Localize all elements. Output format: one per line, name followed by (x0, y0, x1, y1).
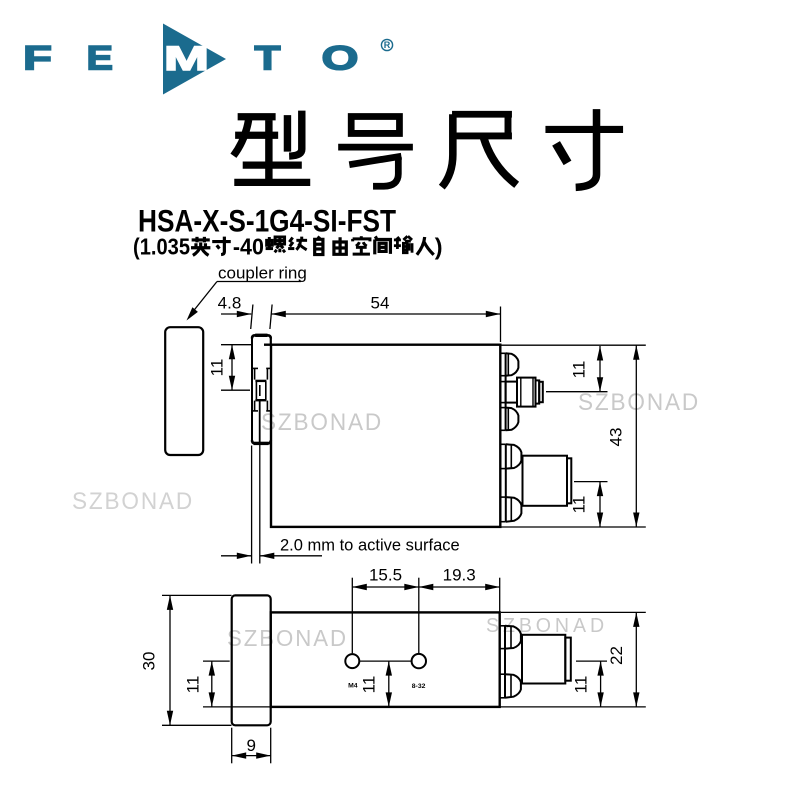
svg-text:(1.035: (1.035 (133, 234, 190, 260)
svg-text:11: 11 (208, 359, 227, 377)
svg-text:coupler ring: coupler ring (218, 264, 307, 283)
svg-text:22: 22 (607, 646, 626, 665)
svg-text:SZBONAD: SZBONAD (72, 488, 194, 515)
svg-text:43: 43 (607, 428, 626, 447)
svg-text:M: M (164, 40, 209, 78)
svg-text:11: 11 (184, 676, 203, 694)
svg-text:15.5: 15.5 (369, 566, 402, 585)
svg-text:9: 9 (246, 736, 255, 755)
svg-text:R: R (384, 40, 391, 50)
svg-text:SZBONAD: SZBONAD (261, 409, 383, 436)
svg-text:-40: -40 (233, 234, 264, 260)
svg-text:11: 11 (570, 496, 589, 514)
svg-text:SZBONAD: SZBONAD (578, 389, 700, 416)
svg-text:4.8: 4.8 (218, 294, 242, 313)
svg-text:11: 11 (570, 361, 589, 379)
svg-text:SZBONAD: SZBONAD (227, 625, 348, 651)
svg-text:O: O (322, 40, 359, 78)
svg-text:11: 11 (572, 676, 591, 694)
svg-text:54: 54 (371, 294, 390, 313)
svg-text:E: E (87, 40, 114, 78)
svg-text:T: T (255, 40, 281, 78)
svg-text:2.0 mm to active surface: 2.0 mm to active surface (280, 537, 460, 555)
svg-text:19.3: 19.3 (443, 566, 476, 585)
svg-text:8-32: 8-32 (412, 683, 426, 690)
svg-text:M4: M4 (348, 683, 358, 690)
svg-text:F: F (23, 40, 52, 78)
svg-text:30: 30 (140, 652, 159, 671)
svg-text:): ) (435, 234, 443, 260)
svg-text:11: 11 (360, 676, 379, 694)
